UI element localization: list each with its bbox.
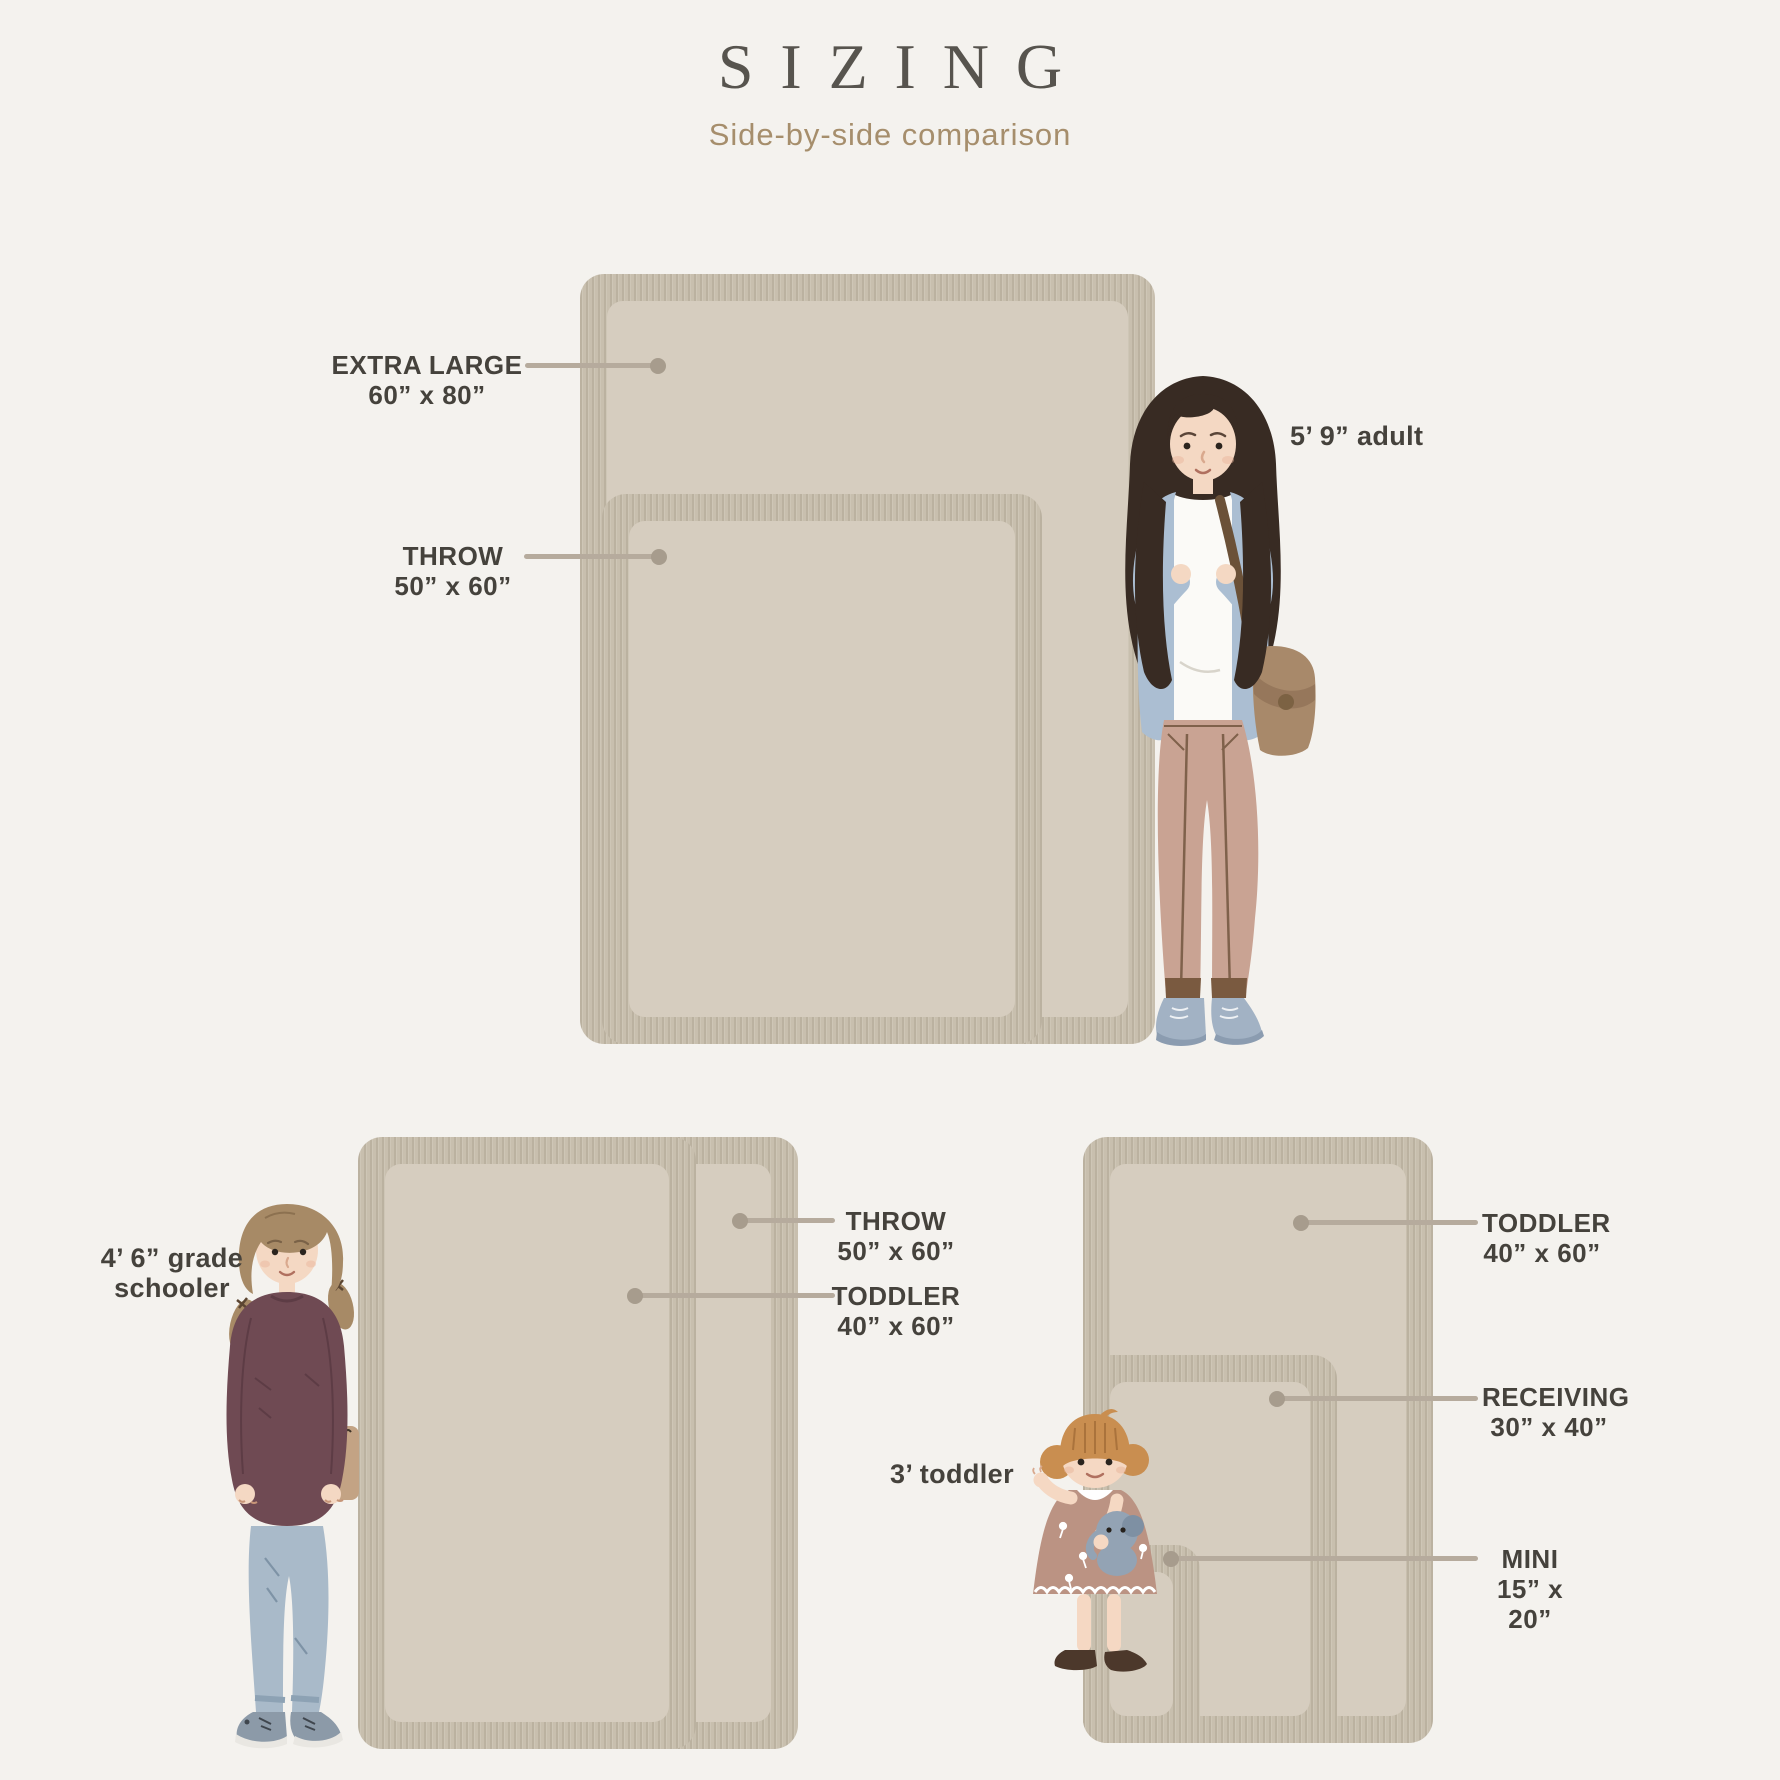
blanket-toddler-bottom-left-core <box>385 1164 669 1722</box>
leader-dot-throw-top <box>651 549 667 565</box>
label-adult: 5’ 9” adult <box>1290 421 1423 451</box>
page-title: SIZING <box>0 30 1780 104</box>
blanket-name: TODDLER <box>790 1281 1002 1311</box>
blanket-size: 40” x 60” <box>790 1311 1002 1341</box>
label-toddler-person: 3’ toddler <box>872 1459 1032 1489</box>
label-toddler-br: TODDLER 40” x 60” <box>1482 1208 1602 1268</box>
blanket-size: 15” x 20” <box>1482 1574 1578 1634</box>
leader-dot-throw-bl <box>732 1213 748 1229</box>
label-throw-bl: THROW 50” x 60” <box>790 1206 1002 1266</box>
label-receiving: RECEIVING 30” x 40” <box>1482 1382 1616 1442</box>
blanket-name: TODDLER <box>1482 1208 1602 1238</box>
blanket-size: 50” x 60” <box>790 1236 1002 1266</box>
label-extra-large: EXTRA LARGE 60” x 80” <box>321 350 533 410</box>
leader-line-extra-large <box>525 363 657 368</box>
blanket-name: EXTRA LARGE <box>321 350 533 380</box>
blanket-name: MINI <box>1482 1544 1578 1574</box>
blanket-size: 50” x 60” <box>347 571 559 601</box>
toddler-illustration <box>1005 1398 1255 1693</box>
page-subtitle: Side-by-side comparison <box>0 117 1780 153</box>
leader-line-toddler-br <box>1300 1220 1478 1225</box>
leader-line-receiving <box>1276 1396 1478 1401</box>
leader-dot-extra-large <box>650 358 666 374</box>
adult-illustration <box>1060 362 1350 1054</box>
blanket-size: 40” x 60” <box>1482 1238 1602 1268</box>
blanket-size: 60” x 80” <box>321 380 533 410</box>
leader-line-mini <box>1170 1556 1478 1561</box>
label-mini: MINI 15” x 20” <box>1482 1544 1578 1634</box>
leader-dot-mini <box>1163 1551 1179 1567</box>
label-toddler-bl: TODDLER 40” x 60” <box>790 1281 1002 1341</box>
sizing-infographic: SIZING Side-by-side comparison EXTRA LAR… <box>0 0 1780 1780</box>
blanket-name: RECEIVING <box>1482 1382 1616 1412</box>
leader-dot-toddler-br <box>1293 1215 1309 1231</box>
label-throw-top: THROW 50” x 60” <box>347 541 559 601</box>
label-grade-schooler: 4’ 6” grade schooler <box>92 1243 252 1303</box>
blanket-toddler-bottom-left <box>358 1137 696 1749</box>
blanket-throw-top-core <box>629 521 1015 1017</box>
blanket-throw-top <box>602 494 1042 1044</box>
blanket-name: THROW <box>347 541 559 571</box>
blanket-size: 30” x 40” <box>1482 1412 1616 1442</box>
blanket-name: THROW <box>790 1206 1002 1236</box>
leader-dot-receiving <box>1269 1391 1285 1407</box>
leader-dot-toddler-bl <box>627 1288 643 1304</box>
